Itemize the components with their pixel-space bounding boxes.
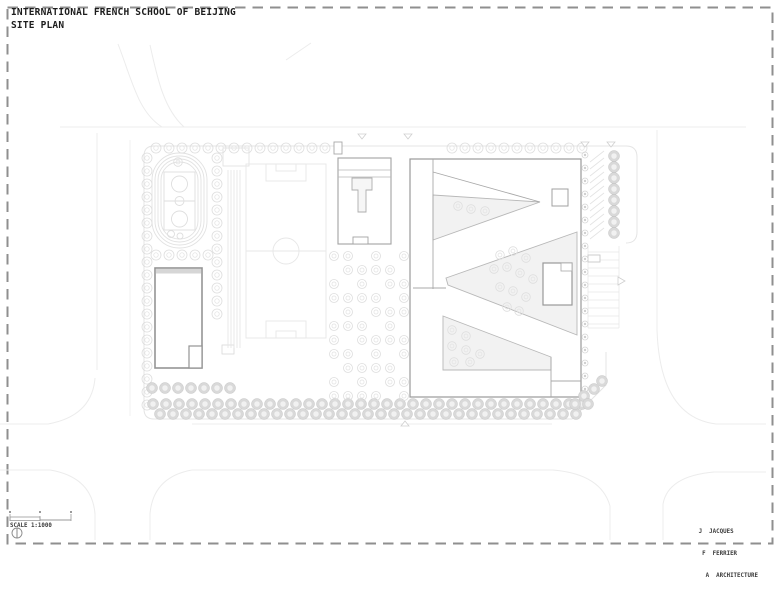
north-indicator (12, 528, 22, 538)
main-school-building (410, 159, 581, 397)
drawing-name: SITE PLAN (11, 19, 236, 32)
gym-building (334, 142, 391, 244)
running-track (152, 153, 207, 248)
soccer-field (246, 164, 326, 338)
site-plan-drawing (0, 0, 780, 551)
scale-label: SCALE 1:1000 (10, 523, 52, 529)
walkway-lanes (222, 148, 249, 354)
credit-line: F FERRIER (699, 551, 758, 558)
annex-north (552, 189, 568, 206)
credit-line: A ARCHITECTURE (699, 573, 758, 580)
scale-bar (9, 511, 72, 521)
drawing-sheet: INTERNATIONAL FRENCH SCHOOL OF BEIJING S… (0, 0, 780, 551)
basketball-court (164, 172, 195, 239)
title-block: INTERNATIONAL FRENCH SCHOOL OF BEIJING S… (11, 6, 236, 32)
sheet-dashed-border (8, 8, 773, 544)
roads (0, 43, 766, 540)
west-building (155, 268, 202, 368)
project-title: INTERNATIONAL FRENCH SCHOOL OF BEIJING (11, 6, 236, 19)
architect-credits: J JACQUES F FERRIER A ARCHITECTURE (699, 514, 758, 595)
credit-line: J JACQUES (699, 529, 758, 536)
